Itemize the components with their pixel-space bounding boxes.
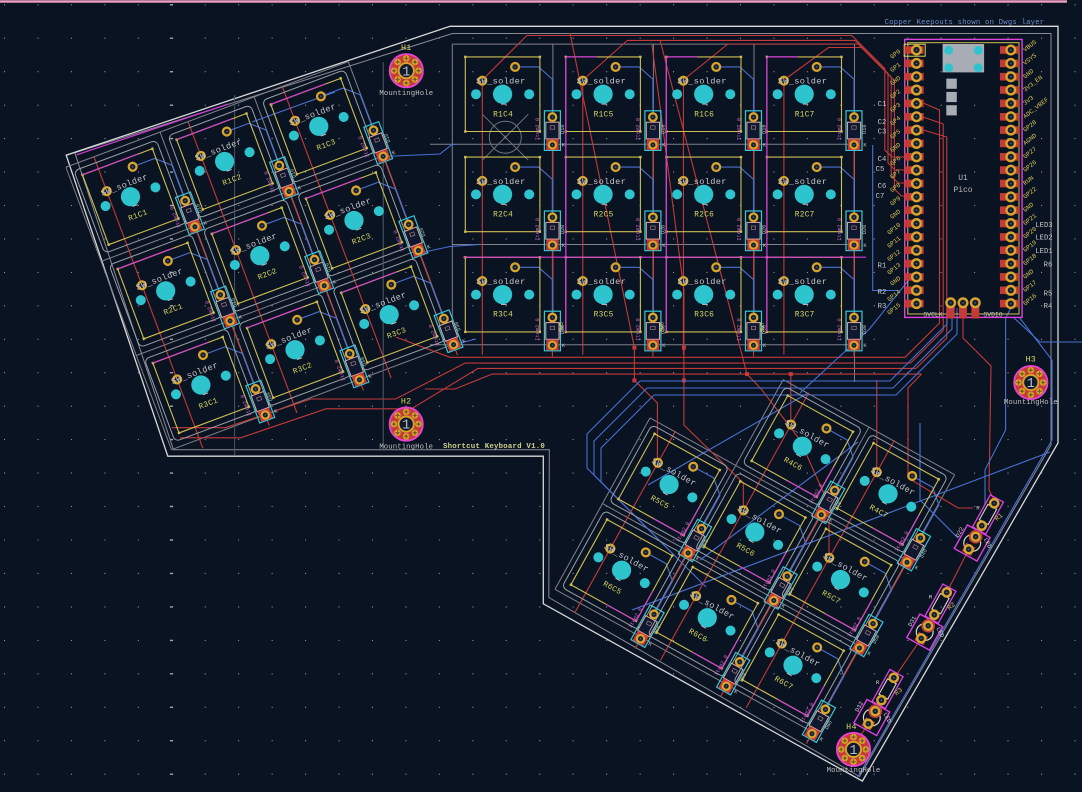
svg-text:SVDIO: SVDIO	[983, 312, 1002, 319]
svg-text:SW_solder: SW_solder	[677, 277, 727, 287]
svg-text:SW5: SW5	[558, 322, 565, 332]
svg-text:Item2_0: Item2_0	[736, 318, 742, 341]
svg-text:LED1: LED1	[1035, 248, 1052, 256]
svg-text:U1: U1	[958, 174, 968, 183]
svg-text:1: 1	[402, 65, 410, 80]
svg-text:Item2_0: Item2_0	[636, 318, 642, 341]
svg-text:R: R	[876, 679, 880, 686]
svg-text:R3C6: R3C6	[694, 312, 714, 320]
svg-text:R1: R1	[878, 263, 887, 271]
svg-text:MountingHole: MountingHole	[379, 444, 433, 452]
svg-text:MountingHole: MountingHole	[1004, 399, 1058, 407]
svg-text:R1C7: R1C7	[795, 111, 815, 119]
svg-text:D10: D10	[862, 125, 868, 134]
svg-text:1: 1	[849, 744, 857, 759]
svg-text:H2: H2	[401, 397, 412, 407]
svg-text:R2C4: R2C4	[493, 212, 513, 220]
svg-text:Pico: Pico	[953, 186, 972, 195]
svg-text:R1C5: R1C5	[594, 111, 614, 119]
svg-text:R3C5: R3C5	[594, 312, 614, 320]
svg-text:R3C4: R3C4	[493, 312, 513, 320]
svg-text:R4: R4	[1044, 303, 1053, 311]
svg-text:Shortcut Keyboard V1.0: Shortcut Keyboard V1.0	[443, 443, 545, 451]
svg-text:SW_solder: SW_solder	[677, 77, 727, 87]
svg-text:SW_solder: SW_solder	[476, 177, 526, 187]
svg-text:C1: C1	[878, 101, 887, 109]
svg-text:MountingHole: MountingHole	[379, 90, 433, 98]
svg-text:SW_solder: SW_solder	[778, 277, 828, 287]
svg-text:C7: C7	[876, 193, 885, 201]
svg-text:Item2_0: Item2_0	[837, 118, 843, 141]
svg-text:SW_solder: SW_solder	[778, 177, 828, 187]
svg-text:Item2_0: Item2_0	[535, 118, 541, 141]
svg-text:R1C4: R1C4	[493, 111, 513, 119]
svg-text:Item2_0: Item2_0	[837, 318, 843, 341]
svg-text:R2: R2	[878, 289, 887, 297]
svg-text:SW_solder: SW_solder	[577, 277, 627, 287]
svg-text:R1C6: R1C6	[694, 111, 714, 119]
svg-text:R5: R5	[1044, 291, 1053, 299]
svg-text:C5: C5	[876, 166, 885, 174]
svg-text:H1: H1	[401, 43, 412, 53]
svg-text:R2C7: R2C7	[795, 212, 815, 220]
svg-text:R3C7: R3C7	[795, 312, 815, 320]
svg-text:Item2_0: Item2_0	[535, 318, 541, 341]
svg-text:C2: C2	[878, 119, 887, 127]
svg-text:H3: H3	[1025, 355, 1036, 365]
svg-text:1: 1	[1027, 377, 1035, 392]
svg-text:SW_solder: SW_solder	[476, 77, 526, 87]
svg-text:LED2: LED2	[1035, 235, 1052, 243]
svg-text:SW_solder: SW_solder	[577, 177, 627, 187]
svg-text:R: R	[976, 505, 980, 512]
svg-text:Item2_0: Item2_0	[837, 218, 843, 241]
svg-text:Copper Keepouts shown on Dwgs: Copper Keepouts shown on Dwgs layer	[885, 19, 1045, 27]
svg-text:SW_solder: SW_solder	[778, 77, 828, 87]
svg-text:SW_solder: SW_solder	[577, 77, 627, 87]
svg-text:SW_solder: SW_solder	[677, 177, 727, 187]
svg-text:Item2_0: Item2_0	[736, 218, 742, 241]
svg-text:MountingHole: MountingHole	[827, 767, 881, 775]
svg-text:C3: C3	[878, 128, 887, 136]
svg-text:LED3: LED3	[1035, 222, 1052, 230]
svg-text:SW6: SW6	[659, 322, 666, 332]
svg-text:R6: R6	[1044, 262, 1053, 270]
svg-text:C4: C4	[878, 156, 887, 164]
svg-text:R2C6: R2C6	[694, 212, 714, 220]
svg-text:Item2_0: Item2_0	[736, 118, 742, 141]
svg-text:Item2_0: Item2_0	[636, 218, 642, 241]
svg-text:SVCLK: SVCLK	[923, 312, 942, 319]
svg-text:1: 1	[402, 419, 410, 434]
svg-text:Item2_0: Item2_0	[636, 118, 642, 141]
svg-text:R: R	[929, 594, 933, 601]
svg-text:Item2_0: Item2_0	[535, 218, 541, 241]
svg-text:C6: C6	[878, 183, 887, 191]
svg-text:D30: D30	[862, 325, 868, 334]
svg-text:D20: D20	[862, 225, 868, 234]
svg-text:R2C5: R2C5	[594, 212, 614, 220]
svg-text:R3: R3	[878, 303, 887, 311]
svg-text:SW_solder: SW_solder	[476, 277, 526, 287]
svg-text:SW7: SW7	[759, 322, 766, 332]
